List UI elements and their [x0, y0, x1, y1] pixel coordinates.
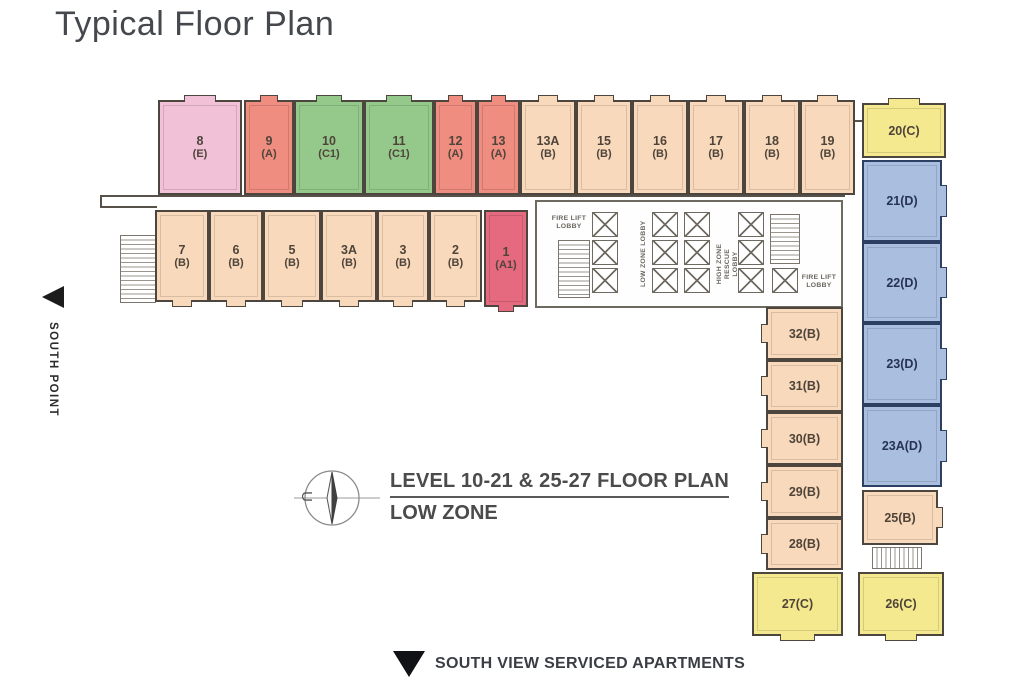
bay-window	[940, 185, 947, 216]
bay-window	[393, 300, 412, 307]
bay-window	[761, 482, 768, 502]
unit-label: 23(D)	[864, 325, 940, 403]
elevator-shaft	[684, 268, 710, 293]
south-view-label: SOUTH VIEW SERVICED APARTMENTS	[435, 655, 745, 673]
unit-label: 21(D)	[864, 162, 940, 240]
bottom-caption: SOUTH VIEW SERVICED APARTMENTS	[393, 651, 745, 677]
unit-label: 13A(B)	[522, 102, 574, 193]
unit-label: 22(D)	[864, 244, 940, 321]
unit-label: 12(A)	[436, 102, 475, 193]
unit-label: 30(B)	[768, 414, 841, 463]
unit-1A1: 1(A1)	[484, 210, 528, 307]
elevator-shaft	[592, 240, 618, 265]
unit-12A: 12(A)	[434, 100, 477, 195]
unit-label: 18(B)	[746, 102, 798, 193]
stairwell	[120, 235, 156, 303]
bay-window	[316, 95, 342, 102]
unit-label: 11(C1)	[366, 102, 432, 193]
bay-window	[448, 95, 464, 102]
unit-label: 13(A)	[479, 102, 518, 193]
bay-window	[594, 95, 615, 102]
elevator-shaft	[684, 212, 710, 237]
unit-label: 27(C)	[754, 574, 841, 634]
unit-6B: 6(B)	[209, 210, 263, 302]
unit-13AB: 13A(B)	[520, 100, 576, 195]
unit-label: 20(C)	[864, 105, 944, 156]
unit-3B: 3(B)	[377, 210, 429, 302]
unit-26C: 26(C)	[858, 572, 944, 636]
unit-15B: 15(B)	[576, 100, 632, 195]
low-zone-lobby-label: LOW ZONE LOBBY	[640, 220, 648, 287]
compass-north-letter: U	[298, 491, 315, 502]
bay-window	[260, 95, 278, 102]
fire-lift-lobby-label-left: FIRE LIFT LOBBY	[548, 215, 590, 231]
unit-19B: 19(B)	[800, 100, 855, 195]
unit-23AD: 23A(D)	[862, 405, 942, 487]
unit-5B: 5(B)	[263, 210, 321, 302]
unit-label: 16(B)	[634, 102, 686, 193]
bay-window	[936, 507, 943, 527]
unit-2B: 2(B)	[429, 210, 482, 302]
bay-window	[650, 95, 671, 102]
unit-label: 3A(B)	[323, 212, 375, 300]
unit-label: 5(B)	[265, 212, 319, 300]
unit-label: 2(B)	[431, 212, 480, 300]
bay-window	[761, 534, 768, 553]
bay-window	[885, 634, 918, 641]
unit-22D: 22(D)	[862, 242, 942, 323]
unit-label: 29(B)	[768, 467, 841, 516]
elevator-shaft	[684, 240, 710, 265]
bay-window	[940, 348, 947, 379]
south-point-annotation: SOUTH POINT	[42, 286, 64, 417]
bay-window	[226, 300, 246, 307]
unit-31B: 31(B)	[766, 360, 843, 412]
unit-3AB: 3A(B)	[321, 210, 377, 302]
bay-window	[184, 95, 216, 102]
floor-plan: FIRE LIFT LOBBY LOW ZONE LOBBY HIGH ZONE…	[0, 0, 1024, 700]
unit-27C: 27(C)	[752, 572, 843, 636]
bay-window	[498, 305, 514, 312]
bay-window	[762, 95, 783, 102]
unit-label: 10(C1)	[296, 102, 362, 193]
unit-label: 9(A)	[246, 102, 292, 193]
bay-window	[172, 300, 192, 307]
unit-10C1: 10(C1)	[294, 100, 364, 195]
bay-window	[761, 376, 768, 395]
unit-18B: 18(B)	[744, 100, 800, 195]
corridor-line	[100, 195, 845, 197]
elevator-shaft	[738, 240, 764, 265]
unit-label: 15(B)	[578, 102, 630, 193]
unit-8E: 8(E)	[158, 100, 242, 195]
stairwell	[872, 547, 922, 569]
bay-window	[706, 95, 727, 102]
unit-label: 23A(D)	[864, 407, 940, 485]
unit-label: 31(B)	[768, 362, 841, 410]
unit-label: 7(B)	[157, 212, 207, 300]
bay-window	[339, 300, 360, 307]
elevator-shaft	[738, 268, 764, 293]
elevator-shaft	[738, 212, 764, 237]
unit-23D: 23(D)	[862, 323, 942, 405]
bay-window	[491, 95, 507, 102]
unit-28B: 28(B)	[766, 518, 843, 570]
unit-29B: 29(B)	[766, 465, 843, 518]
unit-label: 32(B)	[768, 309, 841, 358]
fire-lift-lobby-label-right: FIRE LIFT LOBBY	[800, 274, 838, 290]
bay-window	[780, 634, 815, 641]
unit-20C: 20(C)	[862, 103, 946, 158]
plan-title: LEVEL 10-21 & 25-27 FLOOR PLAN	[390, 470, 729, 498]
bay-window	[281, 300, 303, 307]
bay-window	[386, 95, 412, 102]
south-view-arrow-icon	[393, 651, 425, 677]
south-point-label: SOUTH POINT	[47, 322, 59, 417]
elevator-shaft	[592, 212, 618, 237]
unit-11C1: 11(C1)	[364, 100, 434, 195]
stairwell	[770, 214, 800, 264]
unit-label: 8(E)	[160, 102, 240, 193]
unit-label: 17(B)	[690, 102, 742, 193]
unit-30B: 30(B)	[766, 412, 843, 465]
bay-window	[940, 267, 947, 298]
page: Typical Floor Plan FIRE LIFT LOBBY LOW Z…	[0, 0, 1024, 700]
unit-label: 3(B)	[379, 212, 427, 300]
bay-window	[888, 98, 920, 105]
bay-window	[761, 429, 768, 449]
bay-window	[538, 95, 559, 102]
elevator-shaft	[592, 268, 618, 293]
plan-subtitle: LOW ZONE	[390, 502, 729, 525]
high-zone-rescue-lobby-label: HIGH ZONE RESCUE LOBBY	[716, 238, 740, 290]
unit-label: 6(B)	[211, 212, 261, 300]
bay-window	[446, 300, 466, 307]
unit-label: 1(A1)	[486, 212, 526, 305]
elevator-shaft	[652, 240, 678, 265]
bay-window	[940, 430, 947, 461]
south-point-arrow-icon	[42, 286, 64, 308]
plan-caption: LEVEL 10-21 & 25-27 FLOOR PLAN LOW ZONE	[390, 470, 729, 525]
unit-label: 28(B)	[768, 520, 841, 568]
elevator-shaft	[652, 212, 678, 237]
elevator-shaft	[772, 268, 798, 293]
unit-label: 26(C)	[860, 574, 942, 634]
unit-13A: 13(A)	[477, 100, 520, 195]
stairwell	[558, 240, 590, 298]
corridor-line	[100, 195, 102, 208]
unit-17B: 17(B)	[688, 100, 744, 195]
elevator-shaft	[652, 268, 678, 293]
unit-label: 25(B)	[864, 492, 936, 543]
bay-window	[761, 324, 768, 344]
compass-icon: U	[294, 462, 380, 534]
unit-16B: 16(B)	[632, 100, 688, 195]
unit-21D: 21(D)	[862, 160, 942, 242]
unit-7B: 7(B)	[155, 210, 209, 302]
bay-window	[817, 95, 837, 102]
corridor-line	[100, 206, 157, 208]
unit-32B: 32(B)	[766, 307, 843, 360]
unit-25B: 25(B)	[862, 490, 938, 545]
unit-label: 19(B)	[802, 102, 853, 193]
unit-9A: 9(A)	[244, 100, 294, 195]
